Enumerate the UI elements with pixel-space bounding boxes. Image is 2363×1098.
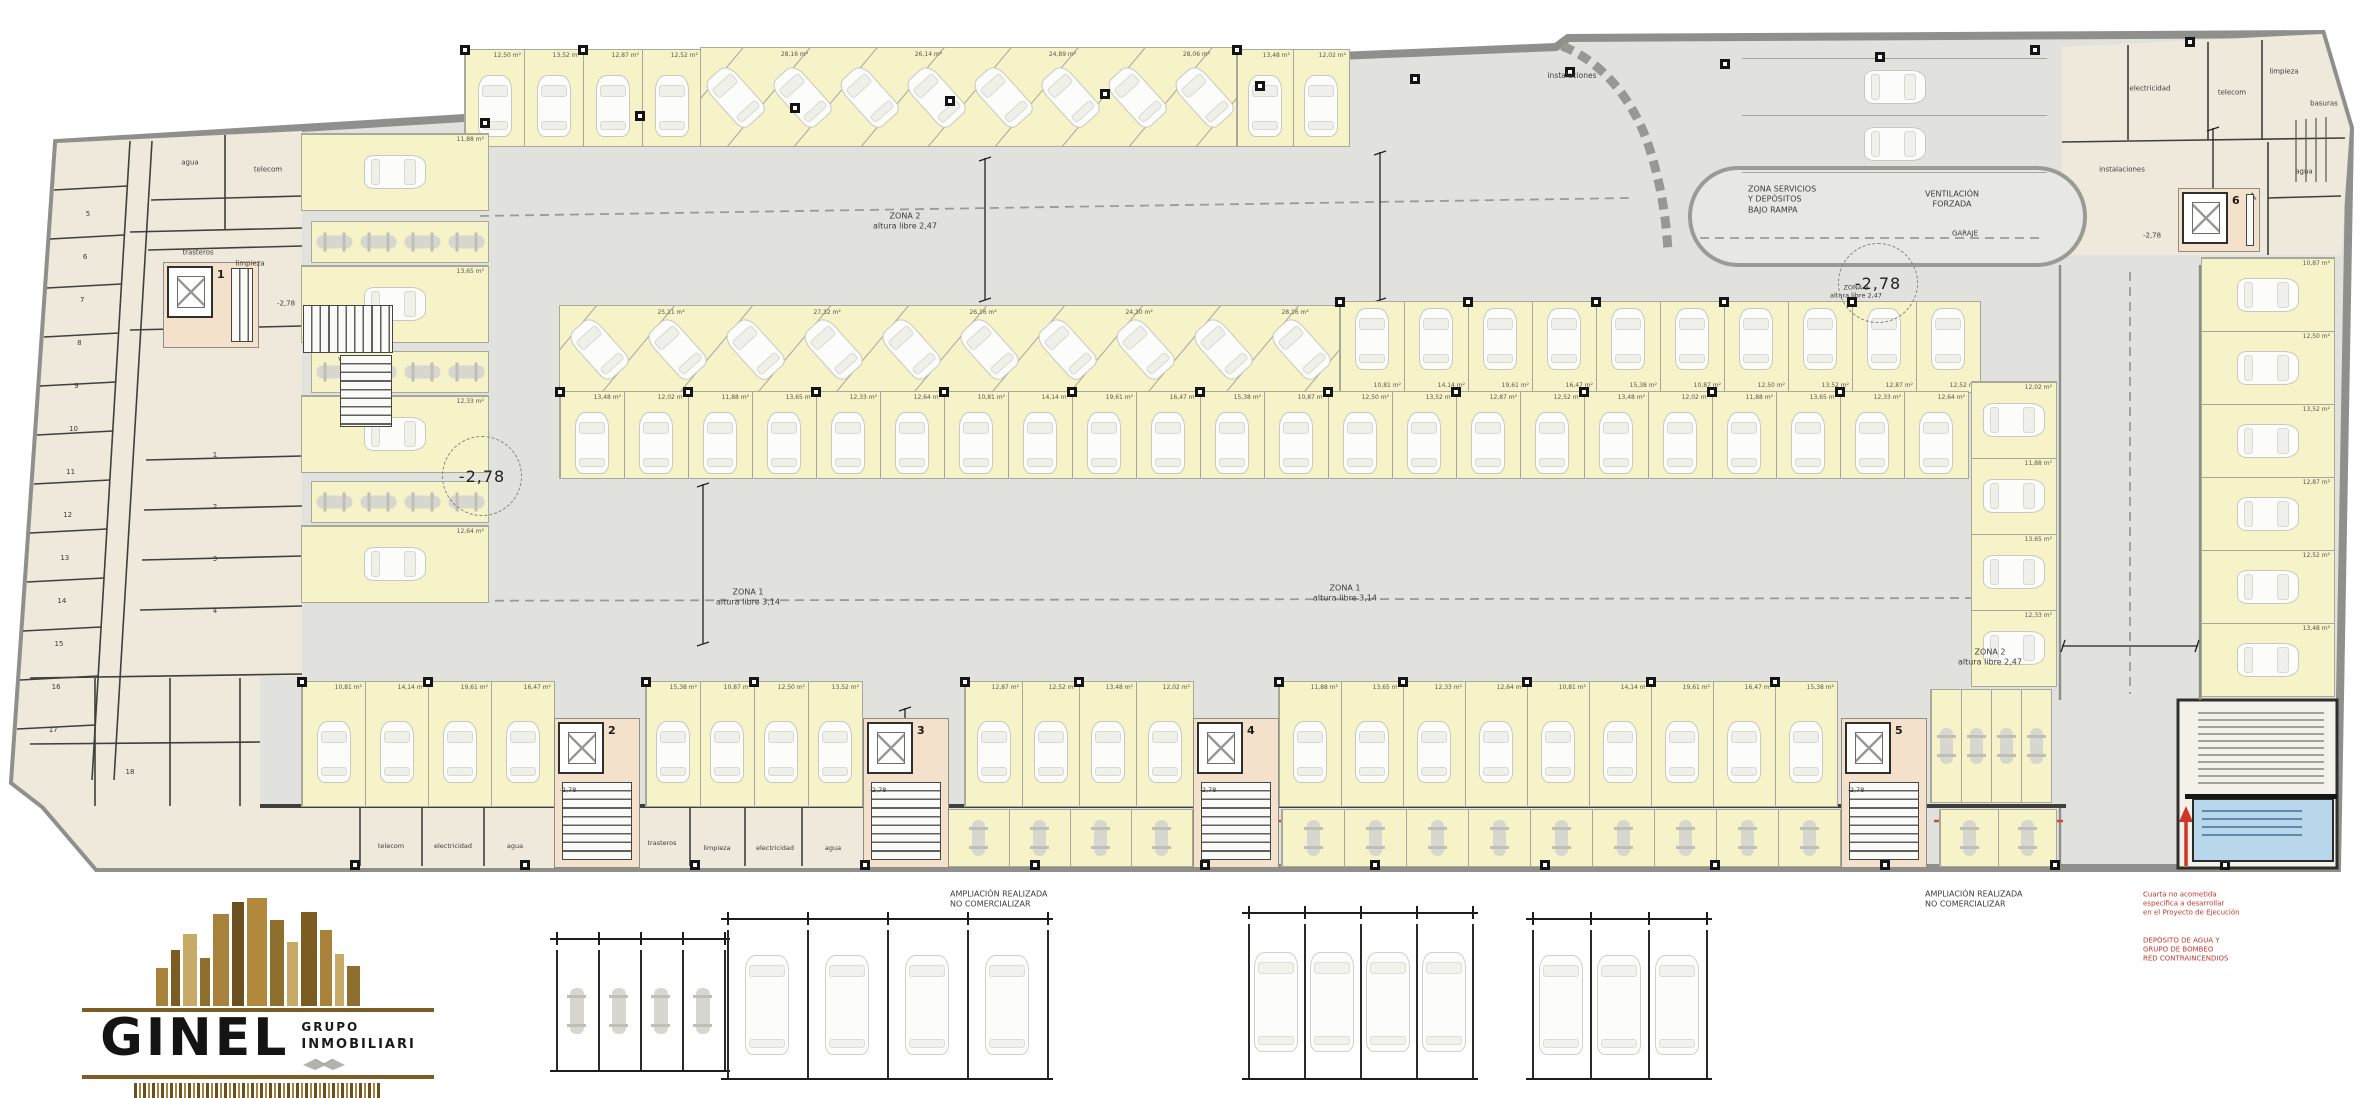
logo-building-bar — [320, 930, 332, 1006]
left-wing-floor — [13, 131, 302, 868]
logo-building-bar — [213, 914, 229, 1006]
ginel-logo: GINEL GRUPO INMOBILIARI — [82, 896, 434, 1098]
logo-building-bar — [335, 954, 344, 1006]
logo-building-bar — [232, 902, 244, 1006]
handshake-icon — [301, 1055, 347, 1073]
main-stair-flight-2 — [340, 355, 392, 427]
logo-building-bar — [156, 968, 168, 1006]
ramp-service-area — [1690, 168, 2085, 265]
water-tank — [2192, 798, 2334, 862]
logo-skyline-icon — [82, 896, 434, 1006]
logo-building-bar — [183, 934, 197, 1006]
logo-rule-bottom — [82, 1075, 434, 1079]
logo-building-bar — [200, 958, 210, 1006]
logo-name: GINEL — [100, 1014, 289, 1063]
logo-building-bar — [347, 966, 360, 1006]
outer-wall — [13, 34, 2350, 868]
main-stair-flight — [303, 305, 393, 353]
logo-barcode-icon — [134, 1083, 382, 1098]
water-tank-notes — [2202, 810, 2302, 840]
logo-building-bar — [270, 920, 284, 1006]
water-room-notes — [2198, 712, 2324, 788]
logo-group-bottom: INMOBILIARI — [301, 1037, 415, 1052]
floorplan-page: { "logo": { "name": "GINEL", "group_top"… — [0, 0, 2363, 1080]
logo-building-bar — [171, 950, 180, 1006]
logo-building-bar — [287, 942, 298, 1006]
water-tank-wall — [2185, 794, 2337, 799]
logo-group-top: GRUPO — [301, 1020, 359, 1034]
logo-building-bar — [301, 912, 317, 1006]
topright-rooms-floor — [2062, 34, 2350, 255]
logo-building-bar — [247, 898, 267, 1006]
